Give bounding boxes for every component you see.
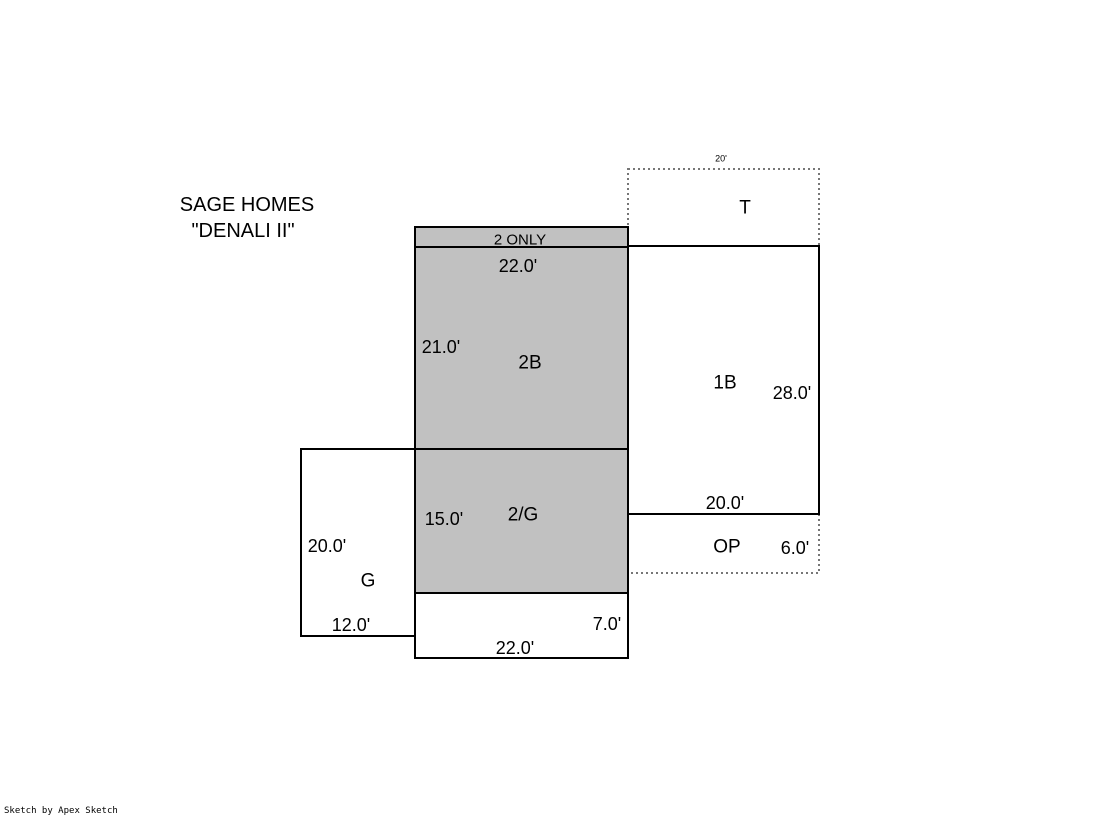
open-porch-label: OP (713, 538, 740, 557)
sketch-title-line1: SAGE HOMES (180, 195, 314, 215)
garage-width-dimension: 12.0' (332, 616, 370, 634)
sketch-title-line2: "DENALI II" (191, 221, 294, 241)
second-floor-width-dimension: 22.0' (499, 257, 537, 275)
t-area-label: T (739, 199, 751, 218)
second-floor-height-dimension: 21.0' (422, 338, 460, 356)
lower-section-height-dimension: 7.0' (593, 615, 621, 633)
apex-sketch-credit: Sketch by Apex Sketch (4, 806, 118, 816)
garage-height-dimension: 20.0' (308, 537, 346, 555)
lower-section-width-dimension: 22.0' (496, 639, 534, 657)
second-over-garage-label: 2/G (508, 506, 539, 525)
second-floor-strip-note: 2 ONLY (494, 233, 546, 248)
second-over-garage-height-dimension: 15.0' (425, 510, 463, 528)
t-area-outline (628, 169, 819, 246)
first-floor-bottom-width-dimension: 20.0' (706, 494, 744, 512)
sketch-drawing (0, 0, 1119, 821)
open-porch-width-dimension: 6.0' (781, 539, 809, 557)
floor-plan-sketch: SAGE HOMES "DENALI II" 20' T 2 ONLY 22.0… (0, 0, 1119, 821)
first-floor-label: 1B (713, 374, 736, 393)
garage-label: G (361, 572, 376, 591)
t-area-width-dimension: 20' (715, 155, 727, 164)
first-floor-height-dimension: 28.0' (773, 384, 811, 402)
second-floor-label: 2B (518, 354, 541, 373)
